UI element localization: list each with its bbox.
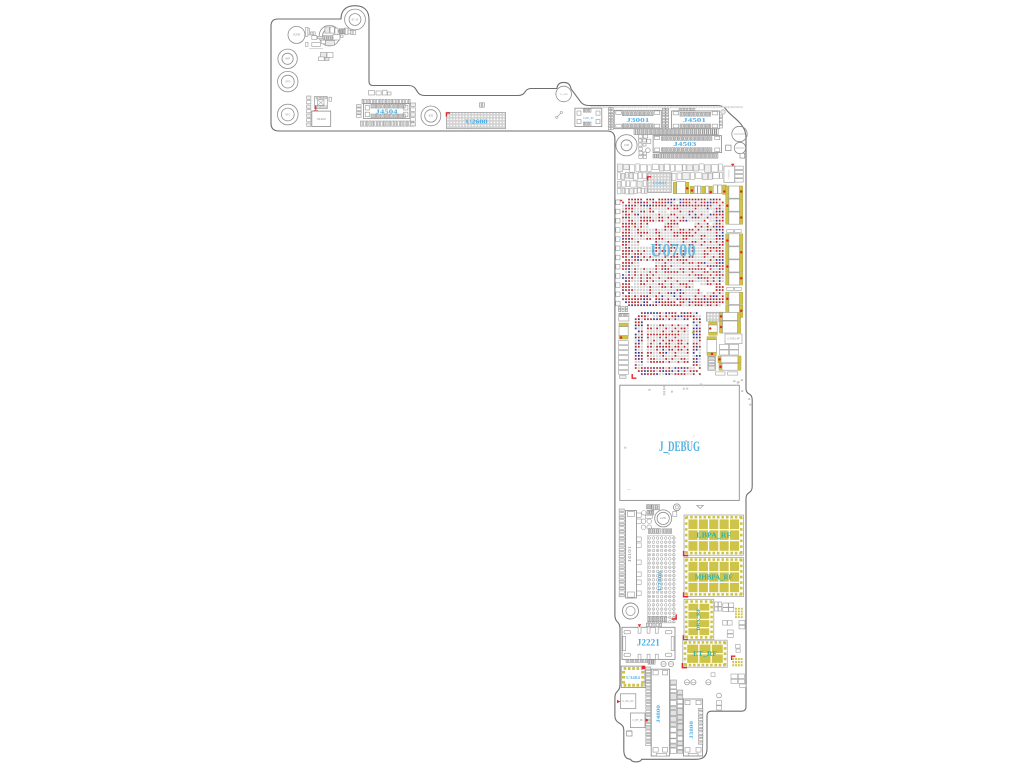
svg-text:BT_W: BT_W [352,18,359,21]
svg-text:J3001: J3001 [626,118,649,124]
svg-text:J4800: J4800 [657,704,662,723]
svg-text:C0841: C0841 [727,169,730,179]
svg-text:U0700: U0700 [650,240,696,261]
svg-text:B2B: B2B [429,115,434,118]
svg-text:J2221: J2221 [637,638,661,648]
svg-text:J_DEBUG: J_DEBUG [659,439,700,455]
svg-text:U0801: U0801 [653,181,667,186]
svg-text:SCRW: SCRW [293,34,301,37]
svg-text:U2600: U2600 [466,119,488,126]
svg-text:U_WL_RF: U_WL_RF [623,700,635,703]
svg-text:U1400: U1400 [317,117,326,121]
svg-text:CAM: CAM [624,144,629,147]
svg-text:J4504: J4504 [376,108,398,115]
svg-text:U_PMU_RF: U_PMU_RF [727,338,740,341]
svg-text:U3404: U3404 [626,675,641,680]
svg-text:J4503: J4503 [673,142,696,148]
svg-text:NFC: NFC [285,113,290,116]
svg-text:WIFI: WIFI [285,58,290,61]
svg-text:J4501: J4501 [683,118,706,124]
svg-text:U3501_RF: U3501_RF [583,116,594,120]
svg-text:L3301: L3301 [660,517,667,520]
svg-text:U_BT_RF: U_BT_RF [632,719,643,722]
svg-text:ET_RF: ET_RF [693,650,717,658]
svg-text:U2800: U2800 [658,571,664,591]
svg-text:YL_SPK: YL_SPK [560,94,569,96]
svg-text:MHBPA_RF: MHBPA_RF [695,574,733,581]
svg-text:J4101: J4101 [627,545,632,562]
svg-text:DRX_RF: DRX_RF [697,609,702,631]
svg-text:J3800: J3800 [690,720,695,739]
svg-text:GPS: GPS [285,80,290,83]
svg-text:LBPA_RF: LBPA_RF [696,532,732,540]
